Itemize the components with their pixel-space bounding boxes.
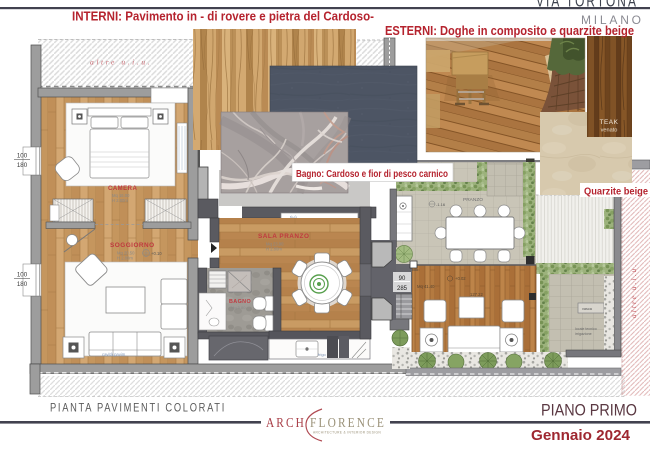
- svg-text:frigo: frigo: [318, 352, 327, 357]
- svg-text:SOGGIORNO: SOGGIORNO: [110, 242, 155, 249]
- svg-text:vasca: vasca: [582, 307, 593, 311]
- svg-text:-1.16: -1.16: [436, 202, 446, 207]
- svg-text:180: 180: [17, 281, 28, 288]
- svg-text:H 2.80m: H 2.80m: [112, 198, 128, 203]
- svg-text:PIANTA PAVIMENTI COLORATI: PIANTA PAVIMENTI COLORATI: [50, 401, 226, 415]
- svg-text:127.22: 127.22: [470, 292, 483, 297]
- svg-text:SALA PRANZO: SALA PRANZO: [258, 233, 309, 240]
- svg-text:INTERNI: Pavimento in - di rov: INTERNI: Pavimento in - di rovere e piet…: [72, 10, 374, 24]
- svg-text:altre u.i.u.: altre u.i.u.: [630, 263, 638, 318]
- svg-text:H 2.80m: H 2.80m: [117, 256, 133, 261]
- svg-text:ARCH: ARCH: [266, 415, 306, 430]
- svg-text:H 2.80m: H 2.80m: [266, 247, 282, 252]
- svg-text:Mq 5.80: Mq 5.80: [231, 305, 246, 310]
- svg-text:PRANZO: PRANZO: [463, 197, 483, 203]
- svg-text:100: 100: [17, 153, 28, 160]
- svg-text:PIANO PRIMO: PIANO PRIMO: [541, 402, 637, 420]
- svg-text:Quarzite beige: Quarzite beige: [584, 187, 648, 198]
- svg-text:ESTERNI: Doghe in composito e: ESTERNI: Doghe in composito e quarzite b…: [385, 24, 634, 38]
- svg-text:TEAK: TEAK: [600, 119, 619, 126]
- svg-text:locale tecnico: locale tecnico: [575, 327, 597, 331]
- svg-text:Bagno: Cardoso e fior di pesco: Bagno: Cardoso e fior di pesco carnico: [296, 169, 448, 180]
- svg-text:100: 100: [17, 272, 28, 279]
- svg-text:Mq 41.40: Mq 41.40: [417, 284, 435, 289]
- svg-text:ARCHITECTURE & INTERIOR DESIGN: ARCHITECTURE & INTERIOR DESIGN: [313, 431, 381, 435]
- svg-text:180: 180: [17, 162, 28, 169]
- svg-text:285: 285: [397, 286, 408, 292]
- svg-text:cavità pavim.: cavità pavim.: [102, 352, 126, 357]
- svg-text:CAMERA: CAMERA: [108, 186, 137, 192]
- svg-text:+0.02: +0.02: [455, 276, 466, 281]
- svg-text:altre u.i.u.: altre u.i.u.: [90, 58, 152, 67]
- svg-text:venato: venato: [601, 128, 618, 134]
- svg-text:+0.10: +0.10: [151, 251, 162, 256]
- svg-text:FLORENCE: FLORENCE: [310, 415, 386, 430]
- svg-text:Gennaio 2024: Gennaio 2024: [531, 427, 631, 444]
- svg-text:irrigazione: irrigazione: [575, 332, 592, 336]
